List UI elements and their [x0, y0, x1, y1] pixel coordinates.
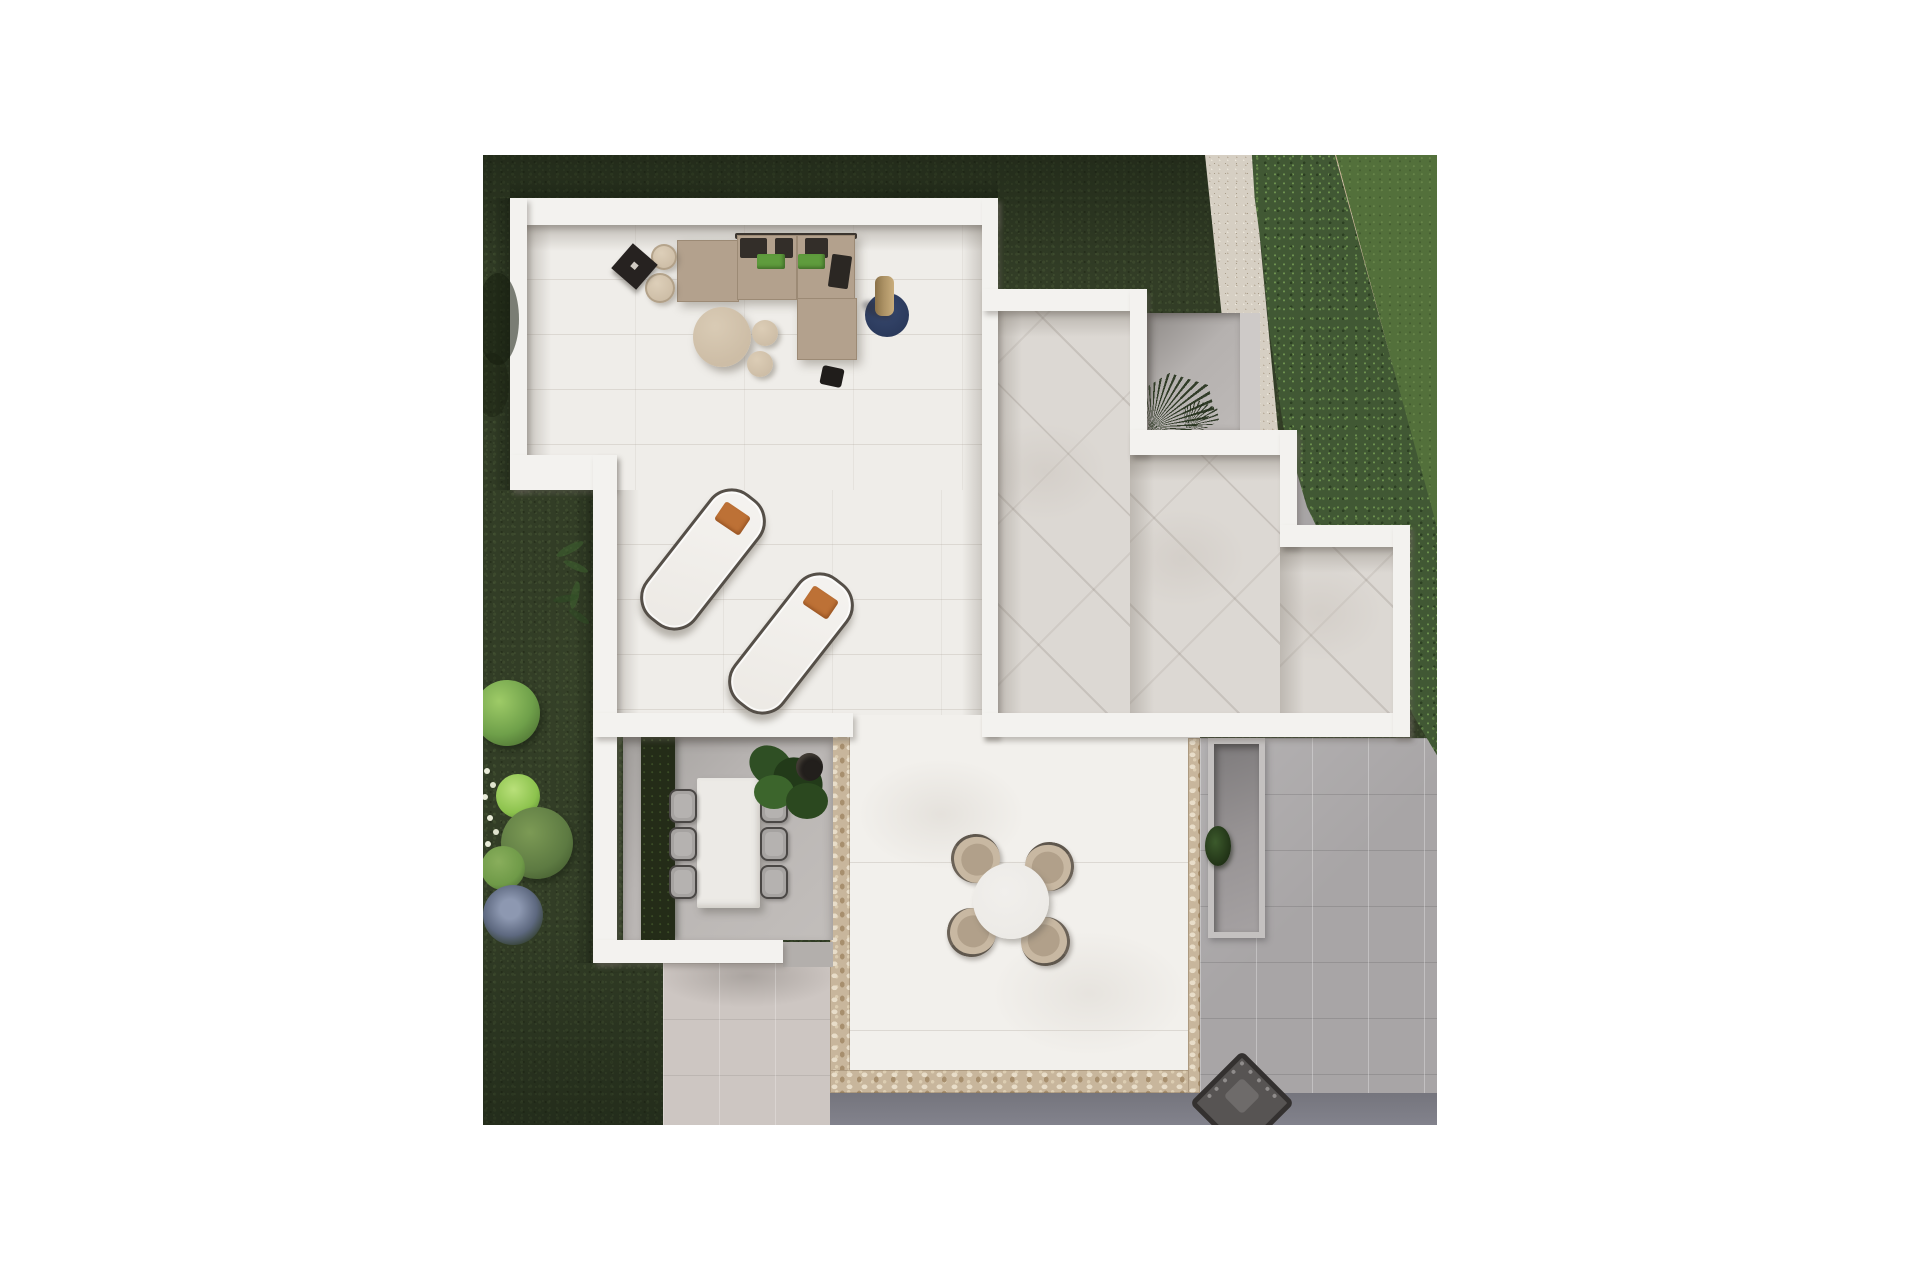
patio-wall-north3 [1280, 525, 1410, 547]
sofa-ottoman [677, 240, 739, 302]
pavement-bottom-left [663, 963, 850, 1125]
round-patio-table [973, 863, 1049, 939]
tiled-patio-floor [1130, 455, 1280, 713]
lounger-pillow [802, 585, 839, 620]
green-pillow [798, 254, 825, 269]
flower-bush-blue [483, 885, 543, 945]
tiled-patio-floor [1280, 547, 1393, 713]
white-flowers [487, 815, 493, 821]
dining-chair [669, 865, 697, 899]
patio-wall-north1 [982, 289, 1130, 311]
patio-wall-north2 [1130, 430, 1297, 455]
aerial-render [483, 155, 1437, 1125]
court-wall-north [593, 713, 853, 737]
patio-wall-east [1393, 525, 1410, 737]
dining-chair [669, 827, 697, 861]
patio-wall-south [982, 713, 1410, 737]
green-pillow [757, 254, 785, 269]
dining-chair [760, 827, 788, 861]
garden-bush [483, 846, 525, 890]
page-background [0, 0, 1920, 1280]
terrace-wall-east [982, 198, 998, 737]
terrace-wall-north [510, 198, 998, 225]
side-table [645, 273, 675, 303]
white-flowers [484, 768, 490, 774]
stone-trim-right [1188, 738, 1200, 1093]
dining-chair [669, 789, 697, 823]
pouf [747, 351, 773, 377]
court-wall-south [593, 940, 783, 963]
potted-plant [748, 745, 833, 823]
tropical-leaves [553, 485, 603, 625]
sofa-chaise [797, 298, 857, 360]
stone-trim-left [830, 695, 850, 1093]
decor-vase [875, 276, 894, 316]
plant-pot [796, 753, 823, 781]
wall-shadow-on-grass [510, 178, 998, 198]
pouf [752, 320, 778, 346]
tiled-patio-floor [998, 311, 1130, 713]
fan-palm-court-wall [1240, 313, 1260, 430]
lounger-pillow [714, 501, 751, 536]
sunken-court-plant [1205, 826, 1231, 866]
street-strip [830, 1093, 1437, 1125]
court-step [783, 942, 833, 967]
stone-trim-bottom [830, 1070, 1200, 1093]
dining-chair [760, 865, 788, 899]
round-coffee-table [693, 307, 751, 367]
